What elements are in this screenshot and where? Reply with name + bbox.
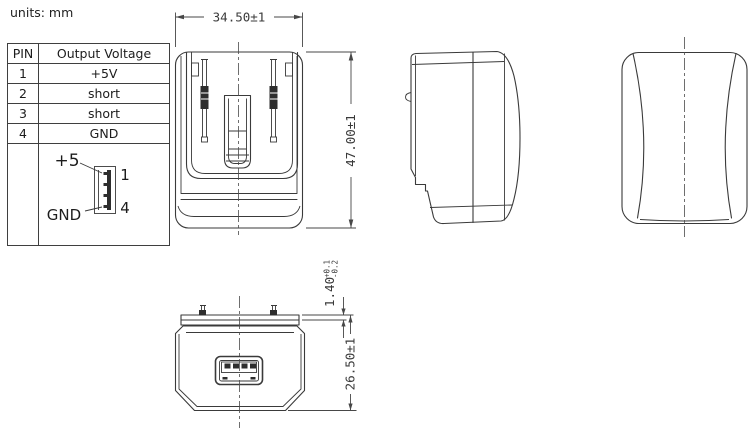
voltage-cell: short: [39, 84, 170, 104]
pin-column-header: PIN: [8, 44, 39, 64]
pin-cell: 4: [8, 124, 39, 144]
usb-port: [216, 357, 263, 385]
lip-dimension-lower-tolerance: -0.2: [331, 260, 340, 278]
pinout-empty-cell: [8, 144, 39, 246]
pinout-ground-label: GND: [47, 206, 81, 224]
width-dimension: 34.50±1: [176, 10, 303, 48]
pin-table: PIN Output Voltage 1 +5V 2 short 3 short…: [7, 43, 170, 246]
table-row: 3 short: [8, 104, 170, 124]
height-dimension: 47.00±1: [306, 52, 358, 228]
usb-connector-symbol: [95, 167, 116, 214]
pinout-last-pin-label: 4: [120, 199, 130, 217]
table-row: 1 +5V: [8, 64, 170, 84]
table-row: 2 short: [8, 84, 170, 104]
lip-dimension-label: 1.40: [322, 277, 337, 307]
front-view-drawing: [176, 42, 303, 235]
left-prong: [201, 60, 209, 143]
lip-dimension: 1.40 +0.1 -0.2: [302, 260, 354, 338]
side-view-drawing: [406, 52, 521, 224]
pinout-cell: +5 GND 1: [39, 144, 170, 246]
drawing-sheet: units: mm: [0, 0, 751, 431]
pin-table-header-row: PIN Output Voltage: [8, 44, 170, 64]
pin-cell: 2: [8, 84, 39, 104]
pinout-row: +5 GND 1: [8, 144, 170, 246]
depth-dimension-label: 26.50±1: [343, 338, 358, 391]
table-row: 4 GND: [8, 124, 170, 144]
pin-cell: 3: [8, 104, 39, 124]
rear-view-drawing: [622, 37, 747, 237]
prong-tips: [199, 306, 277, 316]
side-button-bump: [406, 93, 412, 102]
pinout-first-pin-label: 1: [120, 166, 130, 184]
voltage-cell: +5V: [39, 64, 170, 84]
width-dimension-label: 34.50±1: [213, 10, 266, 25]
voltage-cell: GND: [39, 124, 170, 144]
voltage-column-header: Output Voltage: [39, 44, 170, 64]
pinout-positive-label: +5: [54, 151, 79, 171]
pin-cell: 1: [8, 64, 39, 84]
voltage-cell: short: [39, 104, 170, 124]
center-latch: [225, 96, 251, 169]
height-dimension-label: 47.00±1: [343, 114, 358, 167]
bottom-view-drawing: [176, 296, 305, 428]
right-prong: [270, 60, 278, 143]
pinout-diagram: +5 GND 1: [39, 144, 169, 242]
